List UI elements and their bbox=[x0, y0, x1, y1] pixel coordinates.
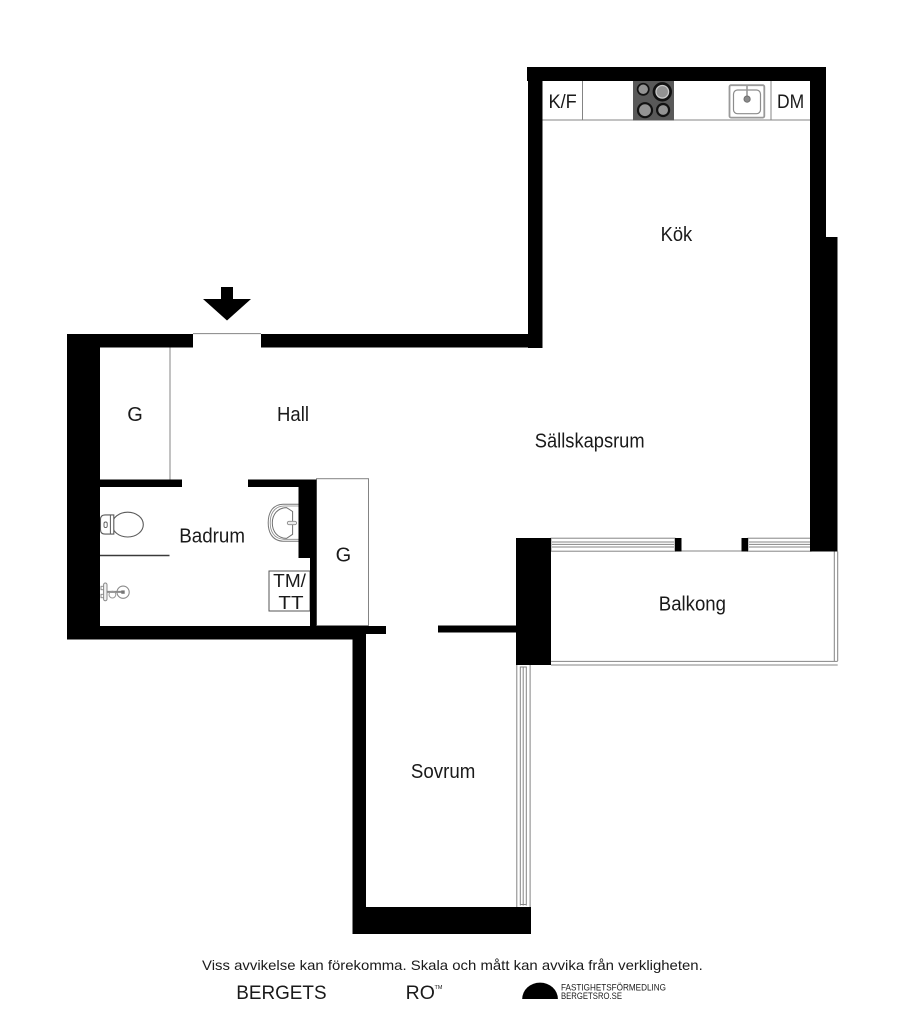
svg-text:RO: RO bbox=[406, 983, 435, 1004]
svg-text:Balkong: Balkong bbox=[659, 594, 726, 616]
svg-text:Sovrum: Sovrum bbox=[411, 761, 475, 783]
svg-text:G: G bbox=[336, 544, 352, 566]
svg-text:Badrum: Badrum bbox=[179, 526, 245, 548]
svg-text:BERGETS: BERGETS bbox=[236, 983, 326, 1004]
svg-text:Viss avvikelse kan förekomma.: Viss avvikelse kan förekomma. Skala och … bbox=[202, 957, 703, 973]
svg-text:DM: DM bbox=[777, 92, 804, 113]
svg-text:Hall: Hall bbox=[277, 404, 309, 426]
svg-text:TM/: TM/ bbox=[273, 571, 306, 591]
svg-text:Kök: Kök bbox=[661, 224, 694, 246]
svg-text:TM: TM bbox=[435, 985, 443, 991]
svg-text:K/F: K/F bbox=[548, 92, 576, 113]
svg-text:BERGETSRO.SE: BERGETSRO.SE bbox=[561, 991, 622, 1002]
svg-text:G: G bbox=[127, 404, 143, 426]
svg-text:TT: TT bbox=[278, 593, 303, 613]
svg-text:Sällskapsrum: Sällskapsrum bbox=[535, 431, 645, 453]
